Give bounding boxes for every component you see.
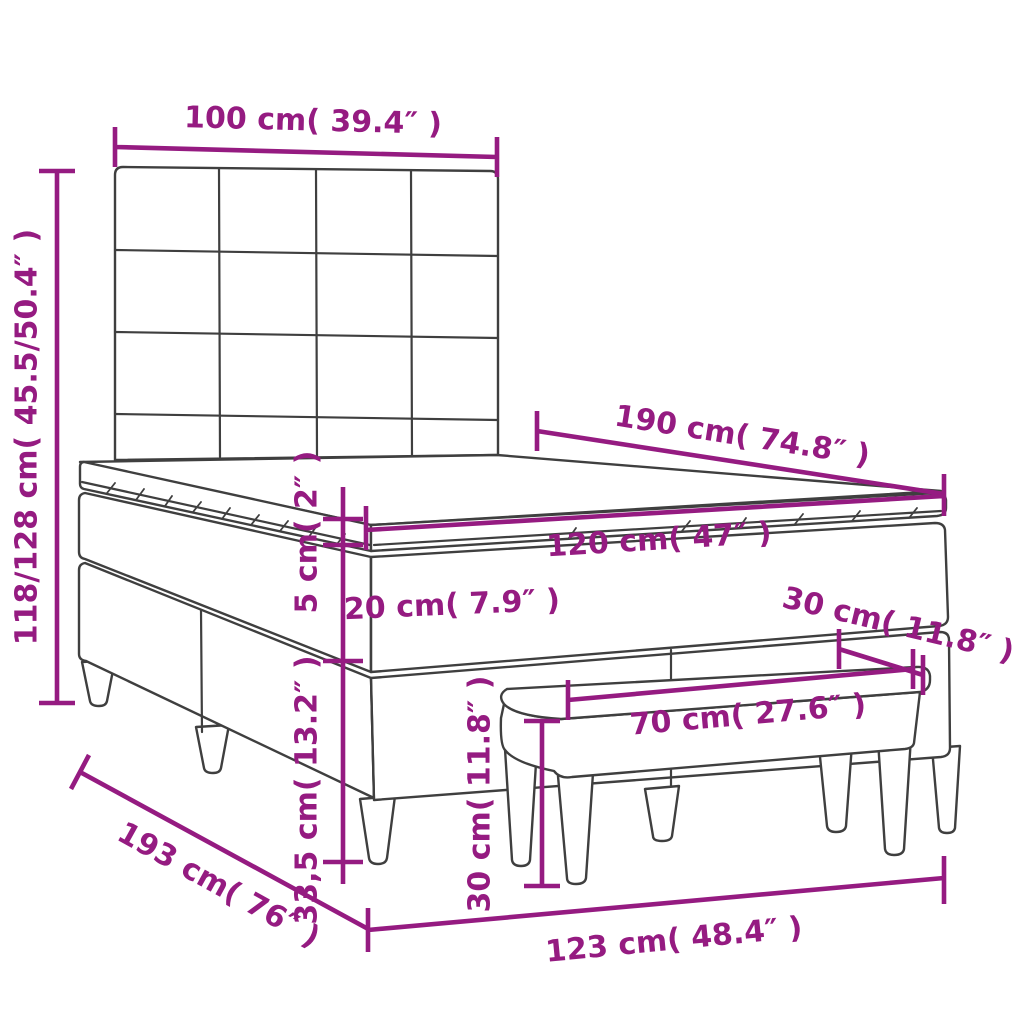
bed-leg-foot [932, 746, 960, 833]
dim-label-total-width: 123 cm( 48.4″ ) [544, 910, 804, 970]
dim-label-bench-height: 30 cm( 11.8″ ) [463, 676, 498, 913]
base-side-seam [201, 610, 202, 732]
dim-label-total-height: 118/128 cm( 45.5/50.4″ ) [10, 229, 45, 645]
bed-dimension-diagram: 100 cm( 39.4″ ) 118/128 cm( 45.5/50.4″ )… [0, 0, 1024, 1024]
bench-leg-3 [645, 786, 679, 841]
bench-leg-2 [558, 773, 593, 884]
bench-leg-4 [819, 744, 852, 832]
dim-label-base-height: 33,5 cm( 13.2″ ) [290, 655, 325, 924]
dim-label-headboard-width: 100 cm( 39.4″ ) [184, 100, 443, 142]
bed-leg-front [360, 796, 395, 864]
dim-label-topper-thickness: 5 cm( 2″ ) [290, 451, 325, 614]
diagram-canvas: 100 cm( 39.4″ ) 118/128 cm( 45.5/50.4″ )… [0, 0, 1024, 1024]
bench-leg-5 [878, 737, 911, 855]
